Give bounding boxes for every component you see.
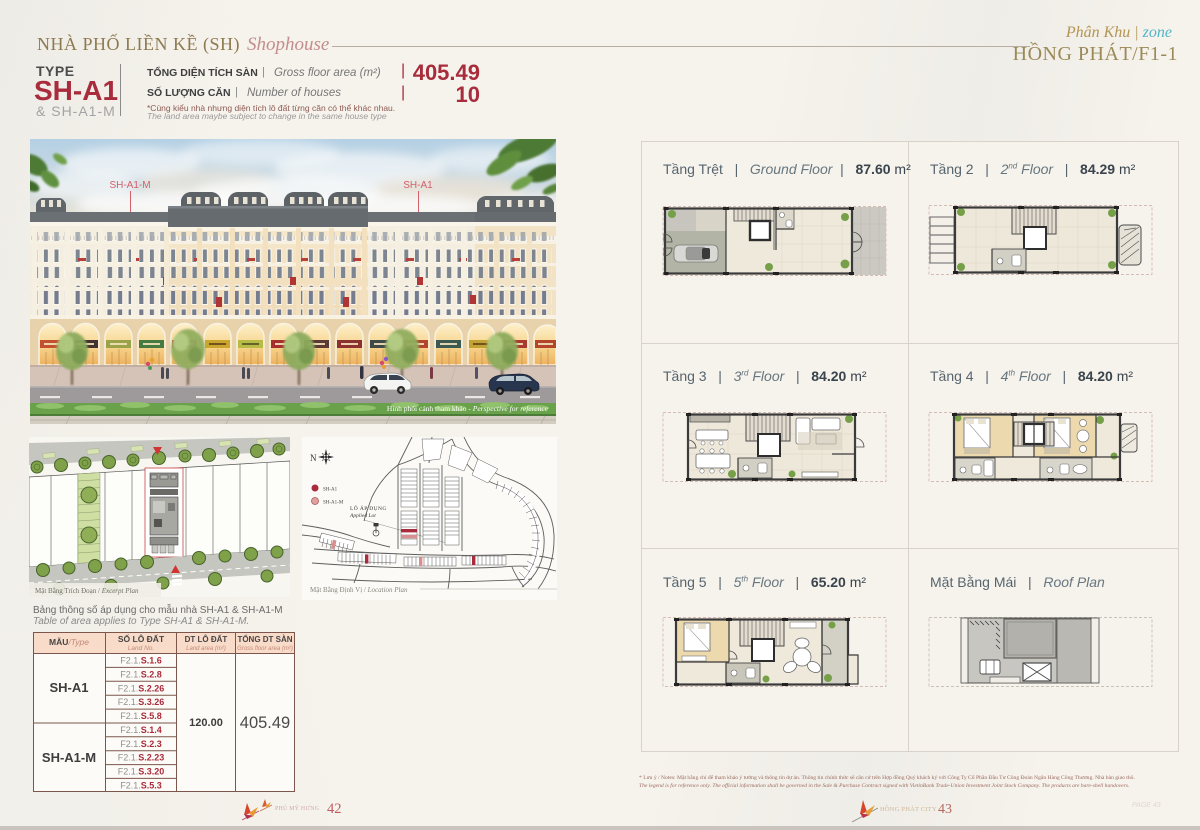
svg-text:TỔNG DT SÀN: TỔNG DT SÀN bbox=[237, 635, 292, 644]
svg-text:DT LÔ ĐẤT: DT LÔ ĐẤT bbox=[185, 634, 228, 644]
svg-text:F2.1.S.2.3: F2.1.S.2.3 bbox=[120, 739, 162, 749]
svg-text:F2.1.S.5.8: F2.1.S.5.8 bbox=[120, 711, 162, 721]
svg-text:F2.1.S.3.26: F2.1.S.3.26 bbox=[118, 697, 165, 707]
svg-text:Hình phối cảnh tham khảo - Per: Hình phối cảnh tham khảo - Perspective f… bbox=[387, 404, 549, 413]
svg-text:N: N bbox=[310, 453, 317, 463]
svg-text:Mặt Bằng Định Vị / Location Pl: Mặt Bằng Định Vị / Location Plan bbox=[310, 586, 408, 594]
svg-text:F2.1.S.2.8: F2.1.S.2.8 bbox=[120, 669, 162, 679]
svg-text:Applied Lot: Applied Lot bbox=[349, 513, 376, 519]
svg-text:SH-A1-M: SH-A1-M bbox=[109, 180, 150, 191]
svg-text:Gross floor area (m²): Gross floor area (m²) bbox=[237, 646, 293, 652]
svg-text:405.49: 405.49 bbox=[240, 714, 290, 732]
svg-text:SH-A1: SH-A1 bbox=[323, 488, 338, 493]
svg-text:F2.1.S.5.3: F2.1.S.5.3 bbox=[120, 780, 162, 790]
svg-text:SH-A1: SH-A1 bbox=[403, 180, 433, 191]
svg-text:Land area (m²): Land area (m²) bbox=[186, 646, 226, 652]
svg-text:Land No.: Land No. bbox=[128, 645, 155, 652]
svg-text:F2.1.S.3.20: F2.1.S.3.20 bbox=[118, 767, 165, 777]
svg-text:F2.1.S.1.6: F2.1.S.1.6 bbox=[120, 656, 162, 666]
svg-text:42: 42 bbox=[327, 801, 342, 817]
svg-text:SH-A1-M: SH-A1-M bbox=[42, 750, 96, 765]
svg-text:SH-A1: SH-A1 bbox=[49, 680, 88, 695]
svg-text:F2.1.S.1.4: F2.1.S.1.4 bbox=[120, 725, 162, 735]
svg-text:SỐ LÔ ĐẤT: SỐ LÔ ĐẤT bbox=[118, 633, 165, 644]
svg-text:F2.1.S.2.26: F2.1.S.2.26 bbox=[118, 683, 165, 693]
svg-text:PHÚ MỸ HƯNG: PHÚ MỸ HƯNG bbox=[275, 804, 319, 812]
svg-text:43: 43 bbox=[938, 802, 952, 817]
svg-text:F2.1.S.2.23: F2.1.S.2.23 bbox=[118, 753, 165, 763]
svg-text:HỒNG PHÁT CITY: HỒNG PHÁT CITY bbox=[880, 805, 937, 813]
svg-text:120.00: 120.00 bbox=[189, 717, 223, 729]
svg-text:SH-A1-M: SH-A1-M bbox=[323, 501, 344, 506]
svg-text:Mặt Bằng Trích Đoạn / Excerpt: Mặt Bằng Trích Đoạn / Excerpt Plan bbox=[35, 587, 139, 595]
svg-text:MẪU/Type: MẪU/Type bbox=[49, 636, 89, 647]
